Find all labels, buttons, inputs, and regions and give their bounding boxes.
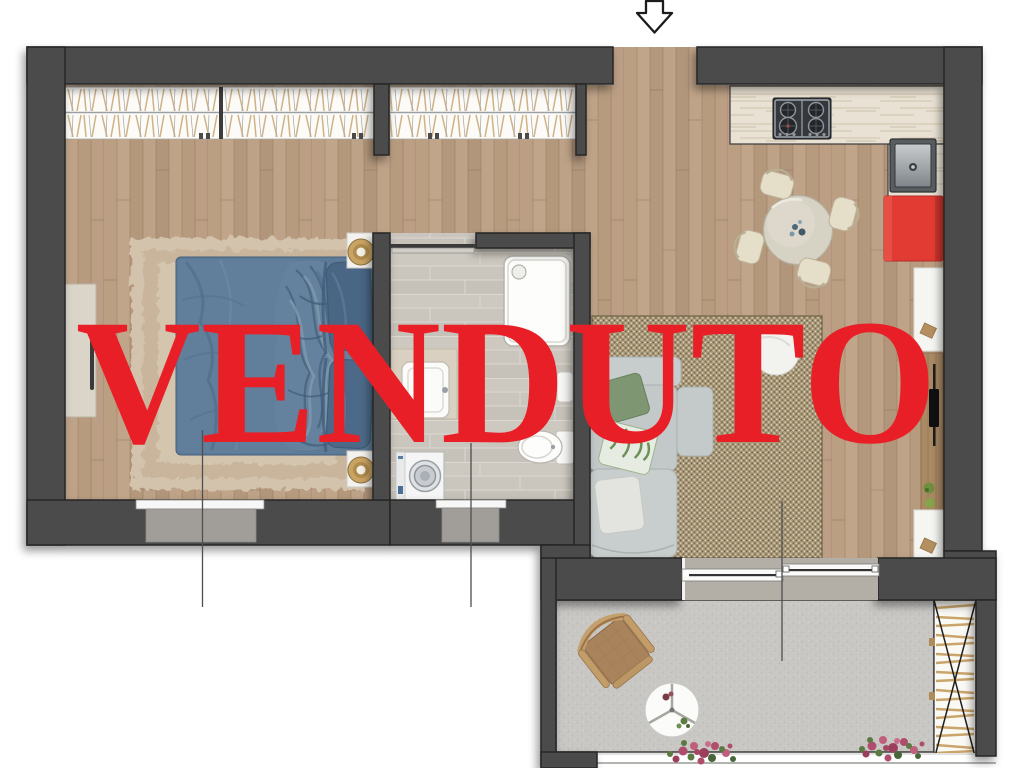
svg-text:VENDUTO: VENDUTO [76, 282, 937, 481]
